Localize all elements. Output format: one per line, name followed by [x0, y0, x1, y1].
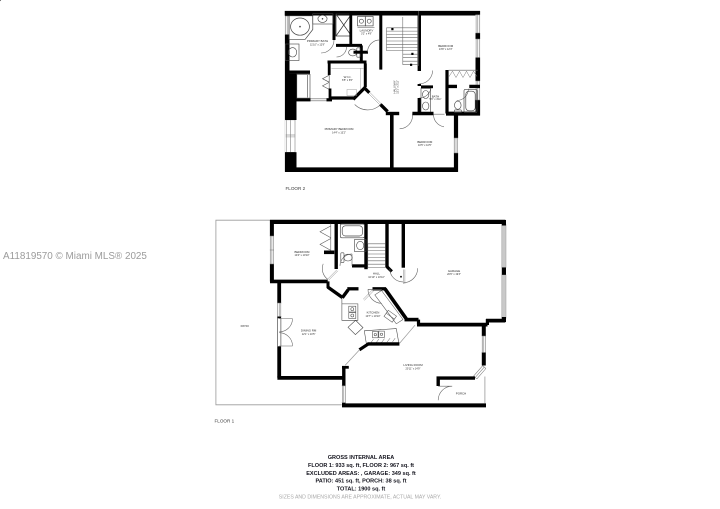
- svg-text:FLOOR 1: 933 sq. ft, FLOOR 2:: FLOOR 1: 933 sq. ft, FLOOR 2: 967 sq. ft: [308, 463, 414, 469]
- svg-text:LIVING ROOM: LIVING ROOM: [403, 363, 423, 367]
- svg-text:A11819570 © Miami MLS® 2025: A11819570 © Miami MLS® 2025: [3, 251, 147, 262]
- svg-text:20'6" x 19'3": 20'6" x 19'3": [447, 273, 461, 276]
- svg-text:10'4" x 10'10": 10'4" x 10'10": [294, 254, 309, 257]
- svg-text:11'10" x 12'9": 11'10" x 12'9": [310, 43, 325, 46]
- svg-text:10'10" x 10'10": 10'10" x 10'10": [368, 276, 385, 279]
- svg-text:PORCH: PORCH: [456, 391, 466, 395]
- svg-text:FLOOR 1: FLOOR 1: [215, 419, 235, 424]
- svg-text:PATIO: PATIO: [241, 324, 250, 328]
- svg-text:GROSS INTERNAL AREA: GROSS INTERNAL AREA: [328, 455, 395, 461]
- svg-text:PRIMARY BEDROOM: PRIMARY BEDROOM: [325, 127, 354, 131]
- svg-text:EXCLUDED AREAS: , GARAGE: 349: EXCLUDED AREAS: , GARAGE: 349 sq. ft: [306, 471, 416, 477]
- svg-text:BEDROOM: BEDROOM: [417, 140, 433, 144]
- svg-text:20'11" x 14'9": 20'11" x 14'9": [406, 368, 421, 371]
- svg-text:BEDROOM: BEDROOM: [438, 44, 454, 48]
- svg-text:6'5" x 6'5": 6'5" x 6'5": [342, 79, 353, 82]
- svg-text:GARAGE: GARAGE: [448, 269, 460, 273]
- svg-text:BEDROOM: BEDROOM: [295, 250, 311, 254]
- svg-text:13'8" x 12'3": 13'8" x 12'3": [439, 48, 453, 51]
- svg-text:14'4" x 13'2": 14'4" x 13'2": [332, 132, 346, 135]
- svg-text:13'1" x 3'11": 13'1" x 3'11": [397, 80, 400, 94]
- svg-text:DINING RM: DINING RM: [301, 329, 317, 333]
- svg-text:PRIMARY BATH: PRIMARY BATH: [307, 39, 328, 43]
- svg-text:5'6" x 4'11": 5'6" x 4'11": [429, 98, 441, 101]
- svg-text:10'5" x 10'5": 10'5" x 10'5": [418, 144, 432, 147]
- svg-text:FLOOR 2: FLOOR 2: [286, 186, 306, 191]
- svg-text:3'2" x 4'9": 3'2" x 4'9": [361, 33, 372, 36]
- svg-text:12'1" x 10'5": 12'1" x 10'5": [302, 333, 316, 336]
- svg-text:SIZES AND DIMENSIONS ARE APPRO: SIZES AND DIMENSIONS ARE APPROXIMATE, AC…: [279, 495, 441, 501]
- svg-text:10'7" x 10'10": 10'7" x 10'10": [365, 315, 380, 318]
- svg-text:TOTAL: 1900 sq. ft: TOTAL: 1900 sq. ft: [337, 487, 386, 493]
- svg-text:PATIO: 451 sq. ft, PORCH: 38 s: PATIO: 451 sq. ft, PORCH: 38 sq. ft: [315, 479, 406, 485]
